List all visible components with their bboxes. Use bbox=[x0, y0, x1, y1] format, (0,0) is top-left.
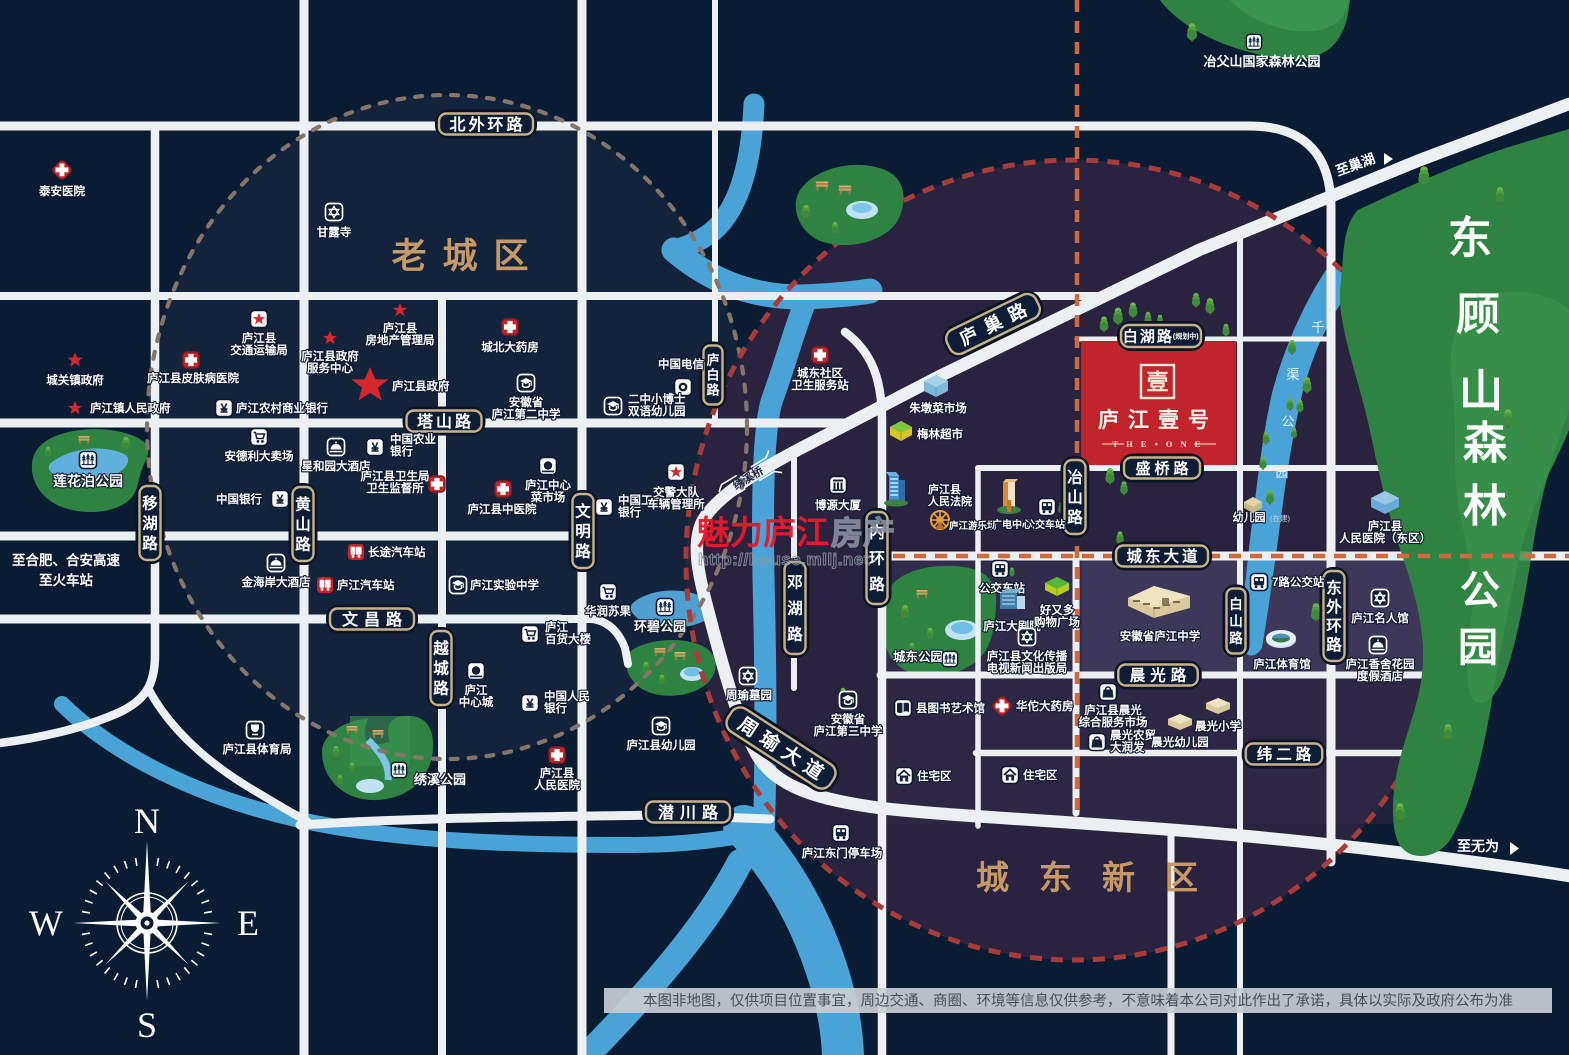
svg-text:银行: 银行 bbox=[390, 444, 413, 458]
svg-text:庐江游乐场: 庐江游乐场 bbox=[949, 520, 997, 532]
svg-text:二中小博士: 二中小博士 bbox=[628, 392, 686, 406]
svg-text:华佗大药房: 华佗大药房 bbox=[1016, 699, 1074, 713]
svg-text:潜川路: 潜川路 bbox=[658, 803, 724, 822]
svg-text:白: 白 bbox=[706, 368, 719, 383]
svg-text:双语幼儿园: 双语幼儿园 bbox=[627, 404, 686, 418]
svg-text:庐江县: 庐江县 bbox=[928, 482, 961, 496]
svg-text:泰安医院: 泰安医院 bbox=[38, 184, 85, 198]
svg-text:庐江县皮肤病医院: 庐江县皮肤病医院 bbox=[147, 371, 239, 385]
svg-text:华润苏果: 华润苏果 bbox=[585, 604, 631, 618]
svg-text:人民医院（东区）: 人民医院（东区） bbox=[1339, 531, 1431, 545]
svg-text:越: 越 bbox=[432, 639, 449, 658]
svg-text:城东新区: 城东新区 bbox=[976, 859, 1228, 896]
svg-text:E: E bbox=[237, 903, 259, 943]
svg-text:庐江县政府: 庐江县政府 bbox=[301, 349, 359, 363]
svg-text:路: 路 bbox=[869, 575, 885, 594]
svg-text:县图书艺术馆: 县图书艺术馆 bbox=[916, 701, 985, 715]
svg-text:湖: 湖 bbox=[787, 600, 803, 618]
svg-text:服务中心: 服务中心 bbox=[307, 361, 353, 375]
svg-text:房产: 房产 bbox=[831, 515, 895, 551]
svg-text:东: 东 bbox=[1448, 214, 1492, 263]
svg-text:路: 路 bbox=[1229, 630, 1243, 646]
svg-text:幼儿园: 幼儿园 bbox=[1233, 510, 1266, 524]
svg-text:庐江县: 庐江县 bbox=[1368, 519, 1403, 533]
svg-text:白湖路: 白湖路 bbox=[1123, 327, 1174, 345]
svg-text:庐江第三中学: 庐江第三中学 bbox=[814, 724, 883, 738]
svg-text:林: 林 bbox=[1463, 482, 1507, 531]
svg-text:中国人民: 中国人民 bbox=[544, 689, 590, 703]
svg-text:庐江香舍花园: 庐江香舍花园 bbox=[1346, 657, 1415, 671]
svg-text:白: 白 bbox=[1229, 596, 1243, 612]
svg-text:度假酒店: 度假酒店 bbox=[1357, 669, 1403, 683]
svg-text:安徽省: 安徽省 bbox=[509, 395, 544, 409]
svg-text:路: 路 bbox=[142, 534, 158, 553]
svg-text:http://house.mllj.net: http://house.mllj.net bbox=[698, 550, 870, 569]
svg-text:购物广场: 购物广场 bbox=[1034, 615, 1080, 629]
svg-text:人民医院: 人民医院 bbox=[534, 778, 580, 792]
svg-text:冶: 冶 bbox=[1067, 468, 1083, 487]
svg-text:移: 移 bbox=[142, 494, 158, 513]
svg-text:电视新闻出版局: 电视新闻出版局 bbox=[987, 661, 1068, 675]
svg-text:车辆管理所: 车辆管理所 bbox=[647, 497, 705, 511]
svg-text:(在建): (在建) bbox=[1270, 513, 1290, 523]
svg-text:(规划中): (规划中) bbox=[1173, 332, 1199, 341]
svg-text:庐江东门停车场: 庐江东门停车场 bbox=[802, 846, 883, 860]
svg-text:山: 山 bbox=[295, 516, 311, 534]
svg-text:周瑜墓园: 周瑜墓园 bbox=[726, 688, 772, 702]
svg-text:长途汽车站: 长途汽车站 bbox=[368, 545, 426, 559]
svg-text:百货大楼: 百货大楼 bbox=[545, 632, 591, 646]
svg-text:庐江县体育局: 庐江县体育局 bbox=[223, 742, 292, 756]
svg-text:庐江县卫生局: 庐江县卫生局 bbox=[361, 469, 430, 483]
svg-text:公: 公 bbox=[1460, 569, 1500, 613]
svg-text:公: 公 bbox=[1281, 414, 1294, 429]
svg-text:路: 路 bbox=[575, 542, 591, 561]
svg-text:晨光小学: 晨光小学 bbox=[1195, 719, 1241, 733]
svg-text:山: 山 bbox=[1229, 614, 1243, 629]
svg-text:庐江第二中学: 庐江第二中学 bbox=[492, 407, 561, 421]
svg-text:7路公交站: 7路公交站 bbox=[1272, 575, 1325, 589]
svg-text:人民法院: 人民法院 bbox=[928, 494, 972, 508]
svg-text:银行: 银行 bbox=[618, 505, 641, 519]
svg-text:朱墩菜市场: 朱墩菜市场 bbox=[908, 401, 967, 415]
svg-text:庐江农村商业银行: 庐江农村商业银行 bbox=[236, 401, 328, 415]
svg-text:庐: 庐 bbox=[706, 353, 719, 368]
svg-text:中国农业: 中国农业 bbox=[390, 432, 436, 446]
svg-text:山: 山 bbox=[1067, 489, 1083, 507]
svg-text:至无为: 至无为 bbox=[1457, 838, 1499, 854]
svg-text:广电中心: 广电中心 bbox=[992, 518, 1032, 531]
svg-text:盛桥路: 盛桥路 bbox=[1135, 459, 1192, 477]
svg-text:庐江实验中学: 庐江实验中学 bbox=[470, 578, 539, 592]
svg-text:园: 园 bbox=[1275, 465, 1288, 480]
svg-text:城东大道: 城东大道 bbox=[1126, 547, 1200, 566]
svg-text:路: 路 bbox=[1326, 635, 1342, 654]
svg-text:湖: 湖 bbox=[142, 515, 158, 533]
svg-text:S: S bbox=[137, 1005, 157, 1045]
svg-text:大润发: 大润发 bbox=[1110, 740, 1145, 754]
svg-text:纬二路: 纬二路 bbox=[1257, 745, 1316, 764]
svg-text:路: 路 bbox=[433, 679, 449, 698]
svg-text:安徽省庐江中学: 安徽省庐江中学 bbox=[1120, 629, 1201, 643]
svg-text:壹: 壹 bbox=[1146, 370, 1168, 395]
svg-text:中国银行: 中国银行 bbox=[216, 492, 262, 506]
svg-text:交通运输局: 交通运输局 bbox=[230, 343, 288, 357]
svg-text:城: 城 bbox=[433, 660, 449, 678]
svg-text:T H E • O N E: T H E • O N E bbox=[1113, 439, 1204, 449]
svg-text:东: 东 bbox=[1326, 578, 1342, 597]
svg-text:明: 明 bbox=[575, 523, 591, 541]
svg-text:冶父山国家森林公园: 冶父山国家森林公园 bbox=[1203, 54, 1320, 69]
svg-text:至火车站: 至火车站 bbox=[39, 572, 93, 588]
svg-text:本图非地图，仅供项目位置事宜，周边交通、商圈、环境等信息仅供: 本图非地图，仅供项目位置事宜，周边交通、商圈、环境等信息仅供参考，不意味着本公司… bbox=[643, 992, 1513, 1010]
svg-text:顾: 顾 bbox=[1456, 290, 1500, 339]
svg-text:外: 外 bbox=[1326, 597, 1342, 616]
svg-text:路: 路 bbox=[1067, 508, 1083, 527]
svg-text:千: 千 bbox=[1311, 320, 1324, 335]
svg-text:庐江中心: 庐江中心 bbox=[525, 478, 571, 492]
svg-text:卫生服务站: 卫生服务站 bbox=[791, 378, 849, 392]
svg-text:梅林超市: 梅林超市 bbox=[917, 427, 963, 441]
svg-text:森: 森 bbox=[1463, 419, 1508, 468]
svg-text:庐江体育馆: 庐江体育馆 bbox=[1253, 657, 1311, 671]
svg-text:城关镇政府: 城关镇政府 bbox=[46, 373, 104, 387]
svg-text:好又多: 好又多 bbox=[1039, 603, 1075, 617]
svg-text:住宅区: 住宅区 bbox=[1023, 768, 1058, 782]
svg-text:庐江汽车站: 庐江汽车站 bbox=[337, 578, 395, 592]
svg-text:庐江县: 庐江县 bbox=[383, 321, 418, 335]
svg-text:晨光路: 晨光路 bbox=[1130, 666, 1192, 685]
svg-text:庐江县政府: 庐江县政府 bbox=[392, 379, 450, 393]
svg-text:环: 环 bbox=[1326, 617, 1342, 635]
svg-text:庐江县文化传播: 庐江县文化传播 bbox=[987, 649, 1068, 663]
svg-text:路: 路 bbox=[787, 625, 803, 644]
svg-text:老城区: 老城区 bbox=[391, 237, 544, 276]
svg-text:北外环路: 北外环路 bbox=[449, 115, 525, 134]
svg-text:银行: 银行 bbox=[544, 701, 567, 715]
svg-text:庐江县: 庐江县 bbox=[242, 331, 277, 345]
svg-text:中国电信: 中国电信 bbox=[658, 357, 704, 371]
svg-text:N: N bbox=[134, 801, 160, 841]
svg-text:园: 园 bbox=[1458, 626, 1498, 670]
svg-text:环碧公园: 环碧公园 bbox=[634, 619, 686, 634]
svg-text:庐江县晨光: 庐江县晨光 bbox=[1084, 703, 1142, 717]
svg-text:城东公园: 城东公园 bbox=[893, 649, 943, 664]
svg-text:邓: 邓 bbox=[787, 574, 803, 592]
svg-text:卫生监督所: 卫生监督所 bbox=[366, 481, 424, 495]
svg-text:庐江县幼儿园: 庐江县幼儿园 bbox=[627, 738, 696, 752]
svg-text:交警大队: 交警大队 bbox=[653, 485, 699, 499]
svg-text:安徽省: 安徽省 bbox=[831, 712, 866, 726]
svg-text:文昌路: 文昌路 bbox=[342, 610, 408, 629]
svg-text:金海岸大酒店: 金海岸大酒店 bbox=[241, 575, 311, 589]
svg-text:甘露寺: 甘露寺 bbox=[317, 225, 352, 239]
svg-text:安德利大卖场: 安德利大卖场 bbox=[225, 449, 294, 463]
svg-text:绣溪公园: 绣溪公园 bbox=[414, 772, 466, 787]
svg-text:W: W bbox=[29, 903, 63, 943]
svg-text:山: 山 bbox=[1459, 367, 1503, 416]
svg-text:莲花泊公园: 莲花泊公园 bbox=[53, 473, 123, 489]
svg-text:房地产管理局: 房地产管理局 bbox=[366, 333, 435, 347]
svg-text:庐江名人馆: 庐江名人馆 bbox=[1351, 611, 1409, 625]
svg-text:路: 路 bbox=[706, 383, 720, 398]
svg-text:中心城: 中心城 bbox=[459, 695, 494, 709]
svg-text:城东社区: 城东社区 bbox=[797, 366, 843, 380]
svg-text:庐江壹号: 庐江壹号 bbox=[1098, 408, 1218, 432]
svg-text:城北大药房: 城北大药房 bbox=[481, 340, 539, 354]
svg-text:庐江县中医院: 庐江县中医院 bbox=[468, 502, 537, 516]
svg-text:庐江: 庐江 bbox=[465, 683, 488, 697]
svg-text:魅力庐江: 魅力庐江 bbox=[697, 514, 829, 551]
svg-text:晨光幼儿园: 晨光幼儿园 bbox=[1151, 735, 1209, 749]
svg-text:至合肥、合安高速: 至合肥、合安高速 bbox=[12, 552, 120, 568]
svg-text:路: 路 bbox=[295, 535, 311, 554]
svg-text:晨光农贸: 晨光农贸 bbox=[1110, 728, 1156, 742]
svg-text:菜市场: 菜市场 bbox=[530, 490, 566, 504]
svg-text:塔山路: 塔山路 bbox=[417, 412, 474, 431]
svg-text:文: 文 bbox=[575, 502, 591, 521]
svg-text:环: 环 bbox=[869, 550, 885, 568]
svg-text:博源大厦: 博源大厦 bbox=[815, 498, 861, 512]
svg-text:黄: 黄 bbox=[295, 495, 311, 514]
svg-text:庐江: 庐江 bbox=[545, 620, 568, 634]
svg-text:庐江镇人民政府: 庐江镇人民政府 bbox=[90, 401, 171, 415]
svg-text:综合服务市场: 综合服务市场 bbox=[1079, 715, 1148, 729]
svg-text:住宅区: 住宅区 bbox=[917, 769, 952, 783]
svg-text:渠: 渠 bbox=[1286, 367, 1299, 382]
svg-text:庐江县: 庐江县 bbox=[540, 766, 575, 780]
